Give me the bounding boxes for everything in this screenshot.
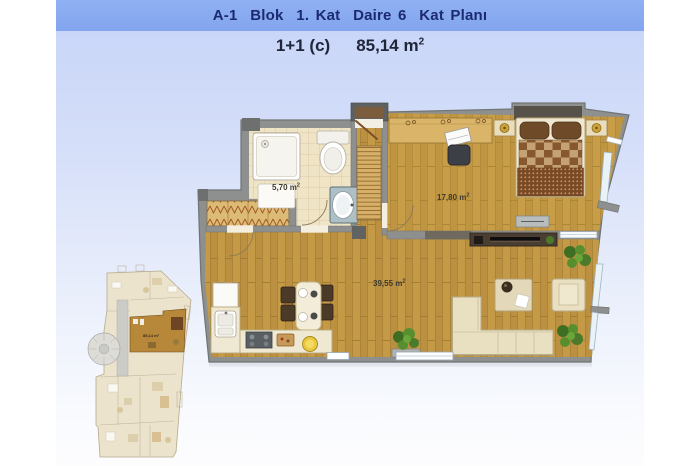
bathroom-area-label: 5,70 m2 [272,183,300,193]
window [327,353,349,360]
dining-table [296,282,321,330]
desk [389,118,492,147]
unit-type-label: 1+1 (c) [276,36,330,56]
sup-2: 2 [419,36,425,47]
bathroom-door-opening [301,225,328,232]
small-plant [546,236,554,244]
main-floor-plan: 5,70 m2 17,80 m2 39,55 m2 [195,95,655,375]
desk-chair [448,145,470,165]
dining-chair [281,287,295,303]
armchair [552,279,585,311]
floor-plan-page: A-1 Blok 1. Kat Daire 6 Kat Planı 1+1 (c… [0,0,700,466]
shower [253,133,300,180]
overview-unit-area-label: 85,14 m² [143,333,160,338]
tv-unit [470,233,557,246]
nightstand-left [494,120,515,136]
pan [303,337,318,352]
stove [246,332,272,348]
page-title: A-1 Blok 1. Kat Daire 6 Kat Planı [213,7,487,24]
corridor-closet [357,146,381,220]
interior-window [560,232,597,239]
cutting-board [277,334,294,346]
hall-door-opening [227,225,253,232]
bathroom-sink [330,187,358,223]
living-area-label: 39,55 m2 [373,279,405,289]
bedroom-area-label: 17,80 m2 [437,193,469,203]
balcony-door [396,352,453,360]
pillow [552,122,581,139]
fridge [213,283,238,307]
pillow [520,122,549,139]
unit-area-label: 85,14 m2 [356,36,424,56]
kitchen-sink [215,311,236,337]
stairwell [88,333,120,365]
subtitle: 1+1 (c) 85,14 m2 [56,36,644,56]
dresser [516,216,549,227]
bed [516,118,585,197]
coffee-table [495,279,532,311]
overview-plan: 85,14 m² [82,250,198,464]
nightstand-right [586,120,607,136]
dining-chair [281,305,295,321]
title-band: A-1 Blok 1. Kat Daire 6 Kat Planı [56,0,644,31]
overview-corridor [117,300,128,376]
bedroom-door-opening [382,203,388,228]
